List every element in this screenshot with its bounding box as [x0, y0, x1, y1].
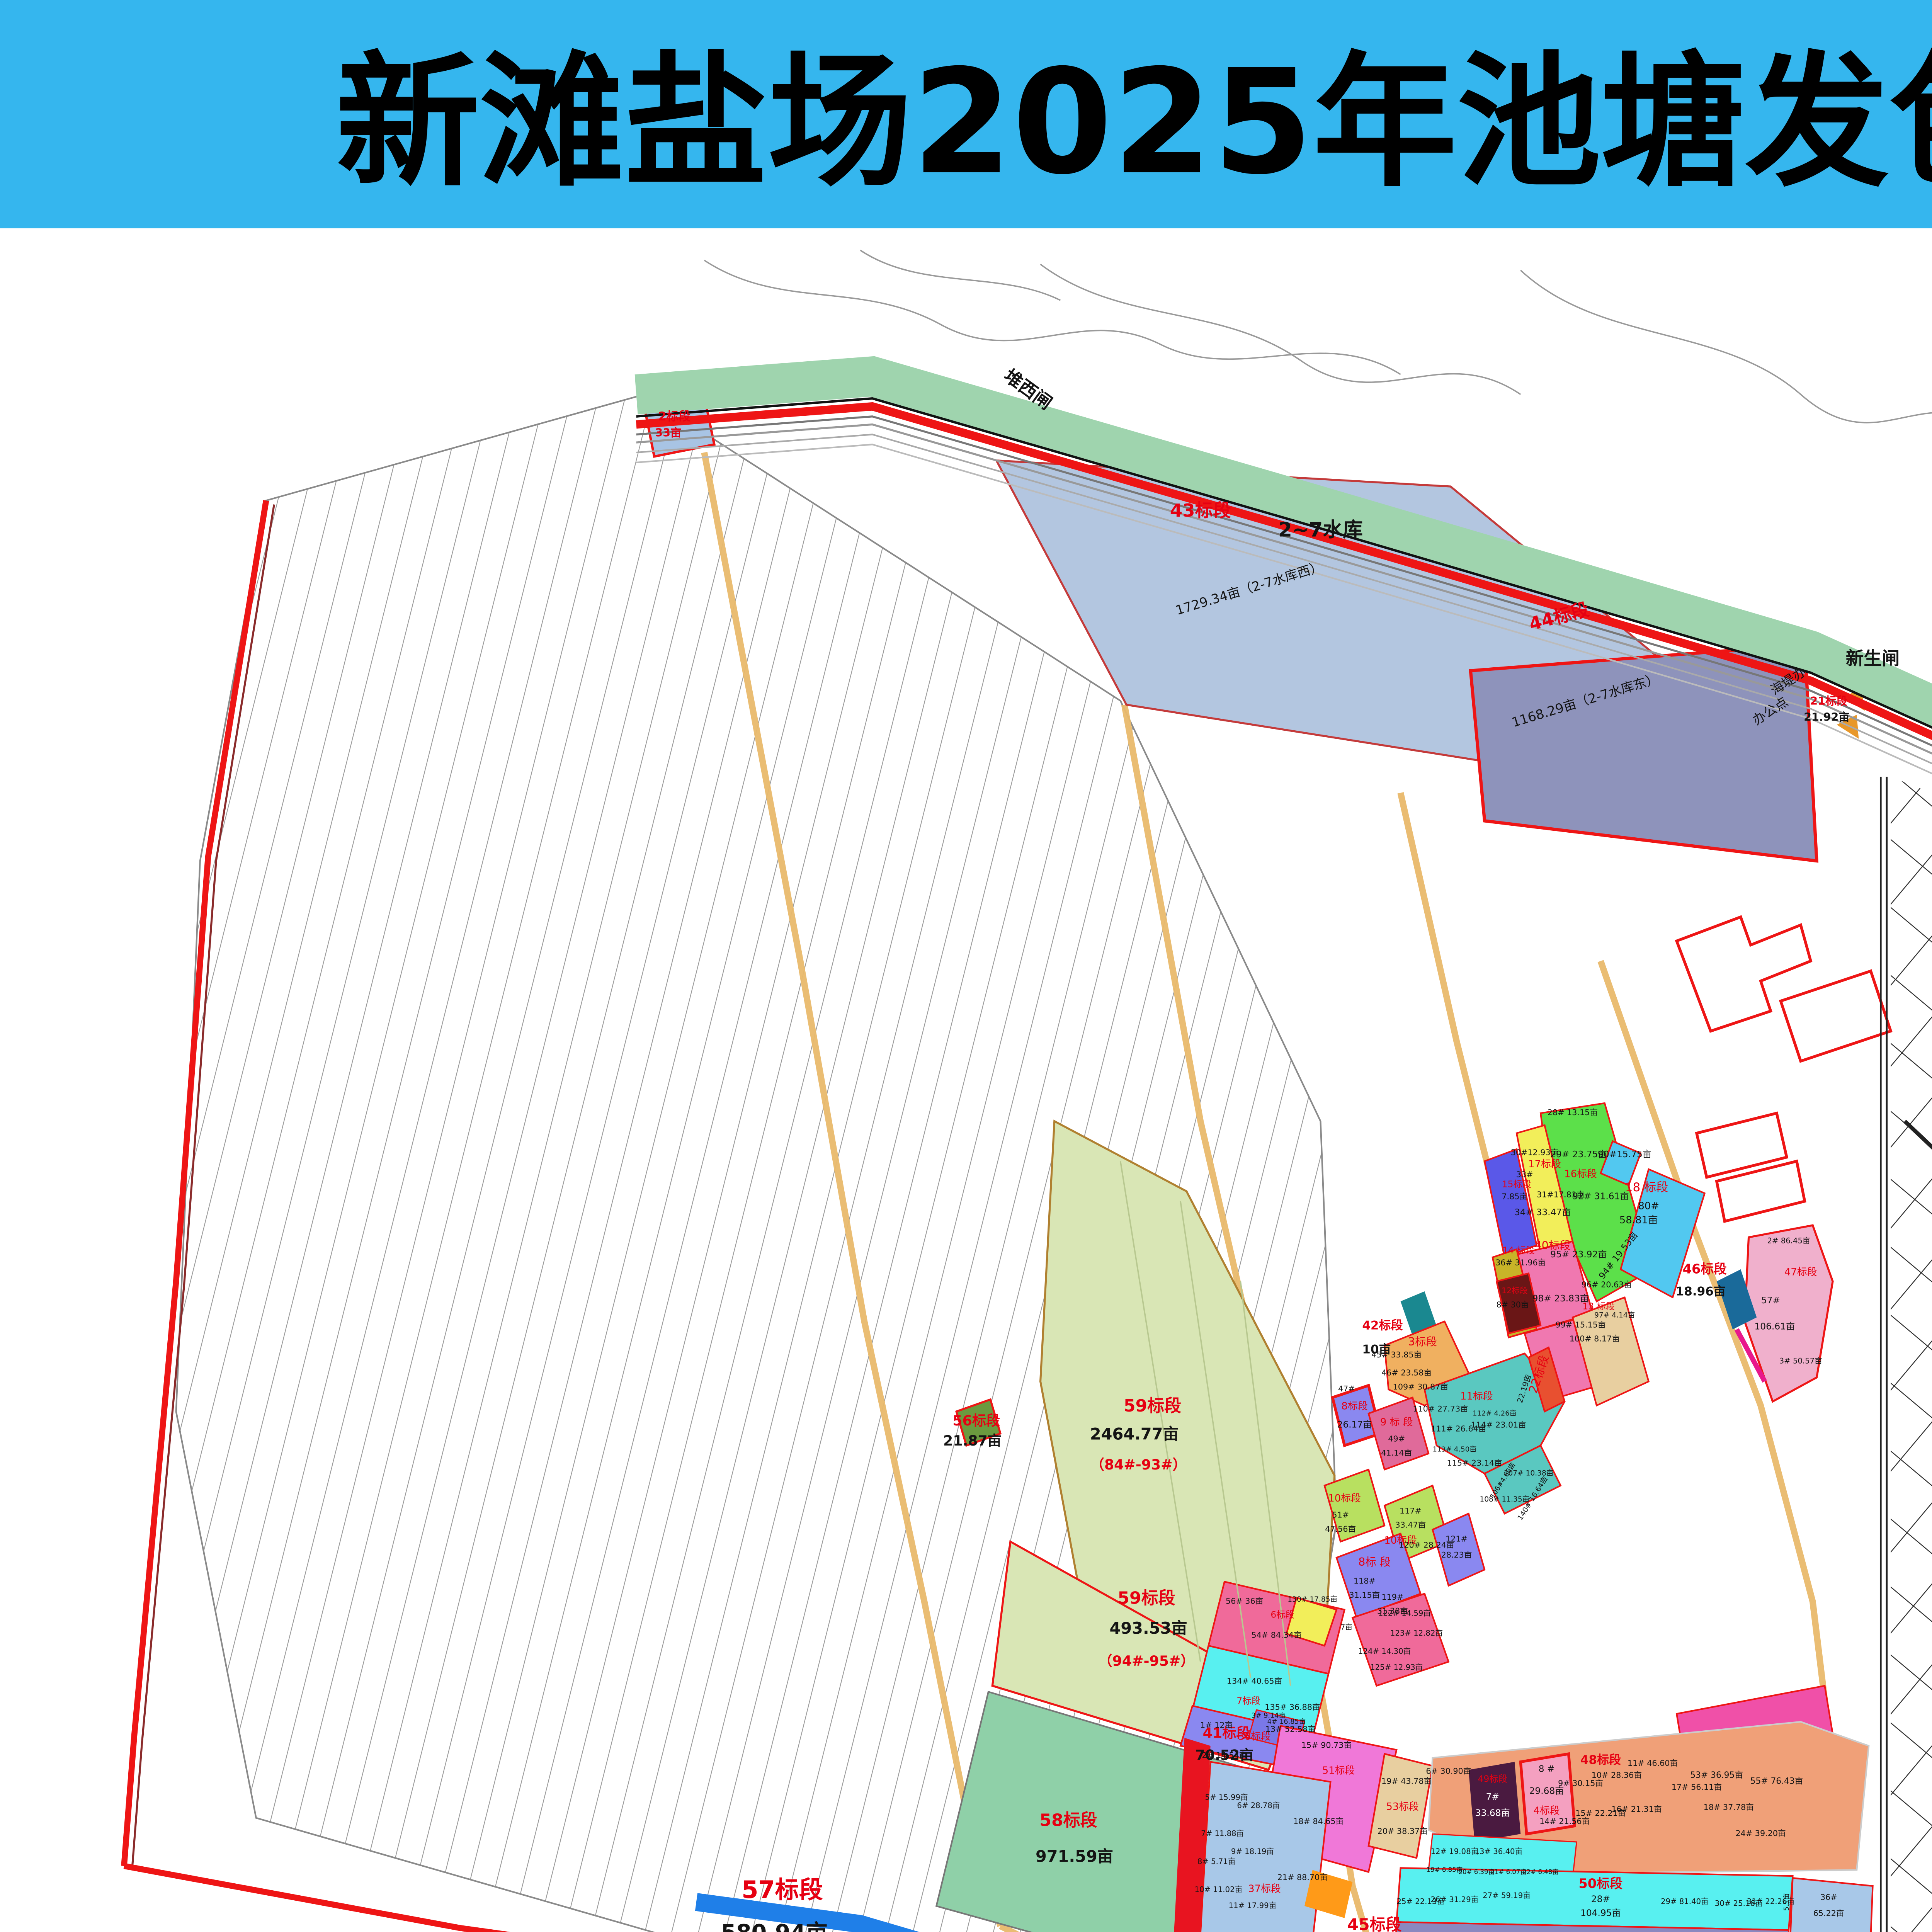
map-label: 41.14亩 — [1381, 1448, 1412, 1458]
map-label: 2# 14.54亩 — [1202, 1750, 1247, 1760]
map-label: 108# 11.35亩 — [1480, 1495, 1529, 1503]
map-label: 53标段 — [1386, 1801, 1419, 1813]
map-label: 54# 84.34亩 — [1251, 1630, 1301, 1639]
map-label: 18# 84.65亩 — [1293, 1816, 1344, 1826]
parcel-36b — [1789, 1878, 1872, 1932]
map-label: 49# — [1388, 1434, 1405, 1444]
map-label: 42标段 — [1362, 1318, 1403, 1332]
map-label: 10# 28.36亩 — [1592, 1770, 1642, 1780]
map-label: 9# 18.19亩 — [1231, 1847, 1274, 1856]
map-label: 124# 14.30亩 — [1358, 1647, 1411, 1656]
map-label: 112# 4.26亩 — [1473, 1409, 1517, 1417]
map-label: 117# — [1400, 1506, 1422, 1515]
map-label: 7# — [1486, 1792, 1499, 1802]
map-label: 114# 23.01亩 — [1471, 1420, 1526, 1429]
map-label: 29# 81.40亩 — [1661, 1897, 1709, 1906]
map-label: 80# — [1638, 1201, 1659, 1212]
map-label: 18# 37.78亩 — [1704, 1803, 1754, 1812]
map-label: 7.85亩 — [1502, 1192, 1527, 1201]
map-label: 17# 56.11亩 — [1672, 1782, 1722, 1792]
map-label: 11# 17.99亩 — [1229, 1901, 1277, 1910]
map-label: 11# 46.60亩 — [1628, 1759, 1678, 1768]
map-label: 31.15亩 — [1349, 1590, 1380, 1600]
map-label: 36# 31.96亩 — [1495, 1258, 1546, 1267]
map-label: 43标段 — [1170, 500, 1231, 521]
title-banner: 新滩盐场2025年池塘发包区域示意图 — [0, 0, 1932, 228]
map-label: 14 标段 — [1502, 1245, 1535, 1256]
map-label: 8# 30亩 — [1496, 1300, 1529, 1309]
map-label: 8 # — [1539, 1764, 1555, 1774]
map-label: 34# 33.47亩 — [1514, 1207, 1571, 1218]
map-label: 10# 11.02亩 — [1195, 1885, 1243, 1894]
map-label: 8标段 — [1341, 1401, 1367, 1412]
map-label: 56标段 — [952, 1412, 1000, 1429]
map-label: 65.22亩 — [1813, 1909, 1844, 1918]
map-label: 28# — [1591, 1894, 1610, 1904]
map-label: 4# 16.85亩 — [1267, 1718, 1306, 1726]
map-label: 21# 88.70亩 — [1277, 1872, 1328, 1882]
map-label: 125# 12.93亩 — [1370, 1663, 1423, 1672]
map-label: 57# — [1761, 1295, 1780, 1306]
map-label: 90#15.75亩 — [1598, 1149, 1651, 1160]
map-label: 13# 52.58亩 — [1265, 1725, 1316, 1734]
map-label: 19# 6.85亩 — [1427, 1866, 1463, 1874]
map-label: 21.92亩 — [1804, 711, 1849, 723]
map-label: 58.81亩 — [1619, 1214, 1658, 1226]
map-label: 107# 10.38亩 — [1503, 1469, 1553, 1478]
map-label: 21标段 — [1810, 695, 1847, 707]
map-label: 16标段 — [1564, 1168, 1597, 1180]
map-label: 47标段 — [1784, 1267, 1817, 1278]
map-label: 24# 39.20亩 — [1736, 1828, 1786, 1838]
map-label: 2# 86.45亩 — [1767, 1236, 1810, 1245]
map-label: 115# 23.14亩 — [1447, 1458, 1502, 1468]
map-label: 9 标 段 — [1380, 1417, 1413, 1428]
map-label: 45# 33.85亩 — [1371, 1350, 1422, 1359]
map-page: 堆西闸新生闸海堤办办公点21标段21.92亩2标段33亩43标段2~7水库172… — [0, 0, 1932, 1932]
map-label: 8# 5.71亩 — [1197, 1857, 1236, 1866]
map-label: 2标段 — [658, 410, 690, 423]
map-label: （94#-95#） — [1098, 1653, 1194, 1669]
map-label: 96# 20.63亩 — [1582, 1280, 1632, 1289]
map-label: 48标段 — [1580, 1753, 1621, 1767]
startup-zone-grid — [1891, 777, 1932, 1932]
map-label: 10标段 — [1328, 1493, 1361, 1504]
map-label: 113# 4.50亩 — [1432, 1446, 1476, 1454]
map-label: 16# 21.31亩 — [1611, 1804, 1662, 1814]
map-label: 53# 36.95亩 — [1690, 1770, 1743, 1780]
map-label: 135# 36.88亩 — [1265, 1702, 1320, 1712]
map-label: 58标段 — [1039, 1810, 1097, 1830]
map-label: 55# 76.43亩 — [1750, 1777, 1803, 1786]
map-label: 971.59亩 — [1036, 1847, 1113, 1866]
map-label: 49标段 — [1478, 1774, 1507, 1784]
map-label: 11标段 — [1460, 1391, 1493, 1402]
map-label: 134# 40.65亩 — [1227, 1677, 1282, 1686]
map-label: 123# 12.82亩 — [1390, 1629, 1443, 1638]
map-label: 33.47亩 — [1395, 1520, 1426, 1529]
map-label: 98# 23.83亩 — [1532, 1293, 1589, 1304]
map-label: 7标段 — [1236, 1696, 1260, 1706]
map-label: 57标段 — [742, 1876, 823, 1904]
map-label: 27# 59.19亩 — [1483, 1891, 1531, 1900]
map-label: 6# 28.78亩 — [1237, 1801, 1280, 1810]
map-label: （84#-93#） — [1090, 1456, 1187, 1473]
map-label: 新生闸 — [1846, 648, 1900, 669]
map-label: 33.68亩 — [1475, 1808, 1510, 1818]
map-label: 26# 31.29亩 — [1431, 1895, 1479, 1904]
map-label: 20# 6.39亩 — [1459, 1868, 1495, 1876]
map-label: 7# 11.88亩 — [1201, 1829, 1244, 1838]
map-label: 15# 90.73亩 — [1301, 1740, 1352, 1750]
map-label: 119# — [1381, 1592, 1403, 1602]
map-label: 22# 6.48亩 — [1522, 1868, 1559, 1876]
map-label: 121# — [1446, 1534, 1468, 1544]
map-label: 46# 23.58亩 — [1381, 1368, 1432, 1378]
map-label: 2~7水库 — [1278, 519, 1363, 542]
map-label: 110# 27.73亩 — [1413, 1404, 1468, 1413]
map-label: 50标段 — [1578, 1876, 1622, 1891]
map-label: 19# 43.78亩 — [1381, 1777, 1432, 1786]
map-label: 106.61亩 — [1754, 1321, 1795, 1332]
map-label: 9# 30.15亩 — [1558, 1779, 1603, 1788]
map-label: 51# — [1332, 1510, 1349, 1520]
map-label: 1# 12亩 — [1200, 1721, 1233, 1730]
map-label: 21# 6.07亩 — [1490, 1868, 1527, 1876]
map-label: 99# 15.15亩 — [1556, 1320, 1606, 1329]
map-label: 12标段 — [1502, 1286, 1528, 1295]
map-label: 18 标段 — [1625, 1180, 1668, 1194]
map-label: 33# — [1516, 1170, 1533, 1179]
map-label: 33亩 — [655, 427, 681, 439]
map-label: 6# 30.90亩 — [1426, 1767, 1471, 1776]
map-label: 92# 31.61亩 — [1572, 1191, 1629, 1202]
map-label: 20# 38.37亩 — [1378, 1827, 1428, 1836]
map-label: 95# 23.92亩 — [1550, 1249, 1607, 1260]
map-label: 45标段 — [1347, 1915, 1402, 1932]
map-label: 8标 段 — [1358, 1556, 1391, 1568]
map-label: 130# 17.85亩 — [1287, 1595, 1337, 1604]
map-label: 28# 13.15亩 — [1548, 1108, 1598, 1117]
map-label: 13# 36.40亩 — [1475, 1847, 1522, 1856]
map-label: 5.5亩 — [1783, 1893, 1791, 1911]
map-label: 15标段 — [1502, 1179, 1531, 1190]
map-label: 17标段 — [1528, 1158, 1561, 1170]
map-label: 580.94亩 — [721, 1920, 828, 1932]
map-label: 5# 15.99亩 — [1205, 1793, 1248, 1802]
map-label: 36# — [1820, 1893, 1837, 1902]
map-label: 493.53亩 — [1110, 1619, 1187, 1638]
map-canvas: 堆西闸新生闸海堤办办公点21标段21.92亩2标段33亩43标段2~7水库172… — [0, 0, 1932, 1932]
map-label: 21.87亩 — [943, 1432, 1002, 1449]
map-label: 59标段 — [1124, 1396, 1181, 1416]
map-label: 7亩 — [1341, 1624, 1352, 1632]
map-label: 109# 30.87亩 — [1393, 1382, 1448, 1391]
map-label: 2464.77亩 — [1090, 1425, 1179, 1443]
map-label: 104.95亩 — [1580, 1908, 1621, 1918]
map-label: 12# 19.08亩 — [1431, 1847, 1479, 1856]
map-label: 37标段 — [1248, 1883, 1281, 1895]
map-label: 47.56亩 — [1325, 1524, 1356, 1534]
map-label: 47# — [1338, 1384, 1355, 1393]
map-label: 26.17亩 — [1337, 1419, 1372, 1430]
page-title: 新滩盐场2025年池塘发包区域示意图 — [336, 38, 1932, 206]
map-label: 59标段 — [1117, 1588, 1175, 1608]
map-label: 51标段 — [1322, 1765, 1355, 1777]
map-label: 3# 50.57亩 — [1779, 1357, 1822, 1366]
map-label: 56# 36亩 — [1226, 1596, 1263, 1605]
map-label: 97# 4.14亩 — [1594, 1311, 1635, 1319]
map-label: 46标段 — [1683, 1261, 1727, 1276]
map-label: 14# 21.56亩 — [1539, 1816, 1590, 1826]
map-label: 3标段 — [1408, 1335, 1437, 1348]
map-label: 6标段 — [1270, 1610, 1294, 1620]
map-label: 4标段 — [1533, 1805, 1560, 1816]
map-label: 118# — [1354, 1577, 1376, 1586]
map-label: 122# 14.59亩 — [1378, 1609, 1431, 1617]
map-label: 28.23亩 — [1441, 1550, 1472, 1560]
map-label: 100# 8.17亩 — [1570, 1334, 1620, 1344]
map-label: 18.96亩 — [1676, 1284, 1726, 1298]
